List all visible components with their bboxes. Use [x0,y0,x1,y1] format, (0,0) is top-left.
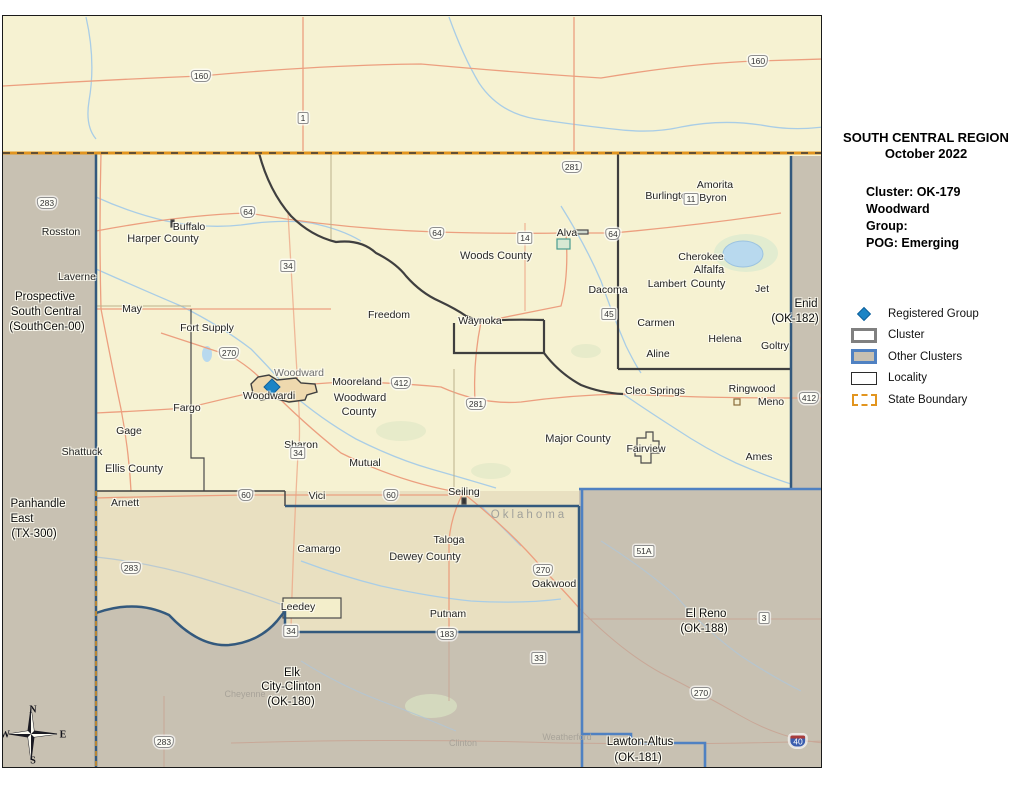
legend-row-locality: Locality [851,368,979,390]
map-label-ringwood: Ringwood [729,383,776,395]
map-label--ok-182-: (OK-182) [771,313,818,325]
registered-group-icon [851,309,877,319]
map-label-mooreland: Mooreland [332,376,382,388]
map-label-buffalo: Buffalo [173,221,206,233]
highway-shield-160: 160 [191,70,211,82]
highway-shield-412: 412 [799,392,819,404]
map-label--ok-188-: (OK-188) [680,623,727,635]
map-label--tx-300-: (TX-300) [11,528,56,540]
highway-shield-270: 270 [691,687,711,699]
map-label-goltry: Goltry [761,340,789,352]
legend-row-cluster: Cluster [851,325,979,347]
cluster-info-line: Group: [866,218,960,235]
map-label--ok-181-: (OK-181) [614,752,661,764]
map-label-amorita: Amorita [697,179,733,191]
map-label-taloga: Taloga [434,534,465,546]
map-label-elk: Elk [284,667,300,679]
highway-shield-51A: 51A [633,545,654,557]
map-label-oakwood: Oakwood [532,578,576,590]
map-label-clinton: Clinton [449,738,477,748]
other-clusters-swatch-icon [851,349,877,364]
highway-shield-281: 281 [466,398,486,410]
legend-label: Other Clusters [888,351,962,363]
map-label-dacoma: Dacoma [588,284,627,296]
map-label-east: East [10,513,33,525]
highway-shield-1: 1 [298,112,309,124]
map-label-helena: Helena [708,333,741,345]
compass-letter-n: N [29,705,36,716]
highway-shield-283: 283 [154,736,174,748]
legend-row-registered-group: Registered Group [851,303,979,325]
highway-shield-45: 45 [601,308,616,320]
map-label-mutual: Mutual [349,457,381,469]
highway-shield-183: 183 [437,628,457,640]
state-boundary-swatch-icon [851,394,877,406]
highway-shield-270: 270 [219,347,239,359]
map-title-line2: October 2022 [831,146,1021,162]
map-label-dewey-county: Dewey County [389,551,461,563]
map-label-county: County [342,406,377,418]
map-label-woodward: Woodward [274,367,324,379]
legend: Registered Group Cluster Other Clusters … [851,303,979,411]
map-label-byron: Byron [699,192,726,204]
legend-label: State Boundary [888,394,967,406]
map-label-vici: Vici [309,490,326,502]
map-title-line1: SOUTH CENTRAL REGION [831,130,1021,146]
map-label-camargo: Camargo [297,543,340,555]
map-label-woodward: Woodward [334,392,386,404]
map-label-oklahoma: Oklahoma [491,509,567,521]
map-label-laverne: Laverne [58,271,96,283]
map-label-aline: Aline [646,348,669,360]
interstate-shield-40: 40 [789,735,806,748]
highway-shield-14: 14 [517,232,532,244]
map-label-lambert: Lambert [648,278,687,290]
highway-shield-3: 3 [759,612,770,624]
highway-shield-34: 34 [283,625,298,637]
legend-label: Locality [888,372,927,384]
highway-shield-160: 160 [748,55,768,67]
cluster-swatch-icon [851,328,877,343]
map-label-meno: Meno [758,396,784,408]
map-label-ames: Ames [746,451,773,463]
highway-shield-270: 270 [533,564,553,576]
map-label-seiling: Seiling [448,486,480,498]
map-label-freedom: Freedom [368,309,410,321]
map-frame: RosstonBuffaloHarper CountyLaverneMayFor… [2,15,822,768]
map-document: RosstonBuffaloHarper CountyLaverneMayFor… [0,0,1024,785]
map-label-county: County [691,278,726,290]
map-label-arnett: Arnett [111,497,139,509]
highway-shield-283: 283 [37,197,57,209]
cluster-info-line: POG: Emerging [866,235,960,252]
map-label-south-central: South Central [11,306,81,318]
map-label-major-county: Major County [545,433,610,445]
map-label-harper-county: Harper County [127,233,199,245]
compass-letter-s: S [30,756,36,767]
map-label-cleo-springs: Cleo Springs [625,385,685,397]
map-label-weatherford: Weatherford [542,732,591,742]
map-label-fargo: Fargo [173,402,200,414]
cluster-info-line: Cluster: OK-179 [866,184,960,201]
compass-letter-e: E [60,730,67,741]
highway-shield-281: 281 [562,161,582,173]
map-label-may: May [122,303,142,315]
map-label-woods-county: Woods County [460,250,532,262]
map-label-jet: Jet [755,283,769,295]
map-label-carmen: Carmen [637,317,674,329]
legend-label: Cluster [888,329,924,341]
map-label-el-reno: El Reno [686,608,727,620]
cluster-info-line: Woodward [866,201,960,218]
map-label-panhandle: Panhandle [11,498,66,510]
legend-row-state-boundary: State Boundary [851,389,979,411]
map-label-waynoka: Waynoka [458,315,501,327]
map-label-cherokee: Cherokee [678,251,724,263]
highway-shield-34: 34 [290,447,305,459]
highway-shield-283: 283 [121,562,141,574]
cluster-info: Cluster: OK-179 Woodward Group: POG: Eme… [866,184,960,252]
info-panel: SOUTH CENTRAL REGION October 2022 Cluste… [823,0,1024,785]
highway-shield-34: 34 [280,260,295,272]
map-basemap [3,16,822,768]
map-label-lawton-altus: Lawton-Altus [607,736,673,748]
legend-row-other-clusters: Other Clusters [851,346,979,368]
map-label-putnam: Putnam [430,608,466,620]
map-label-leedey: Leedey [281,601,315,613]
map-label-gage: Gage [116,425,142,437]
map-label--southcen-00-: (SouthCen-00) [9,321,84,333]
legend-label: Registered Group [888,308,979,320]
compass-letter-w: W [2,730,10,741]
map-label-alfalfa: Alfalfa [694,264,725,276]
map-label-alva: Alva [557,227,577,239]
map-label-shattuck: Shattuck [62,446,103,458]
map-label-enid: Enid [794,298,817,310]
map-label-cheyenne: Cheyenne [224,689,265,699]
map-label-city-clinton: City-Clinton [261,681,320,693]
map-label-ellis-county: Ellis County [105,463,163,475]
locality-swatch-icon [851,372,877,385]
map-label-fort-supply: Fort Supply [180,322,234,334]
highway-shield-11: 11 [684,193,699,205]
map-label-fairview: Fairview [626,443,665,455]
map-label-woodwardi: Woodwardi [243,390,295,402]
map-title: SOUTH CENTRAL REGION October 2022 [831,130,1021,162]
highway-shield-412: 412 [391,377,411,389]
map-label-prospective: Prospective [15,291,75,303]
map-label--ok-180-: (OK-180) [267,696,314,708]
highway-shield-33: 33 [531,652,546,664]
map-label-rosston: Rosston [42,226,81,238]
